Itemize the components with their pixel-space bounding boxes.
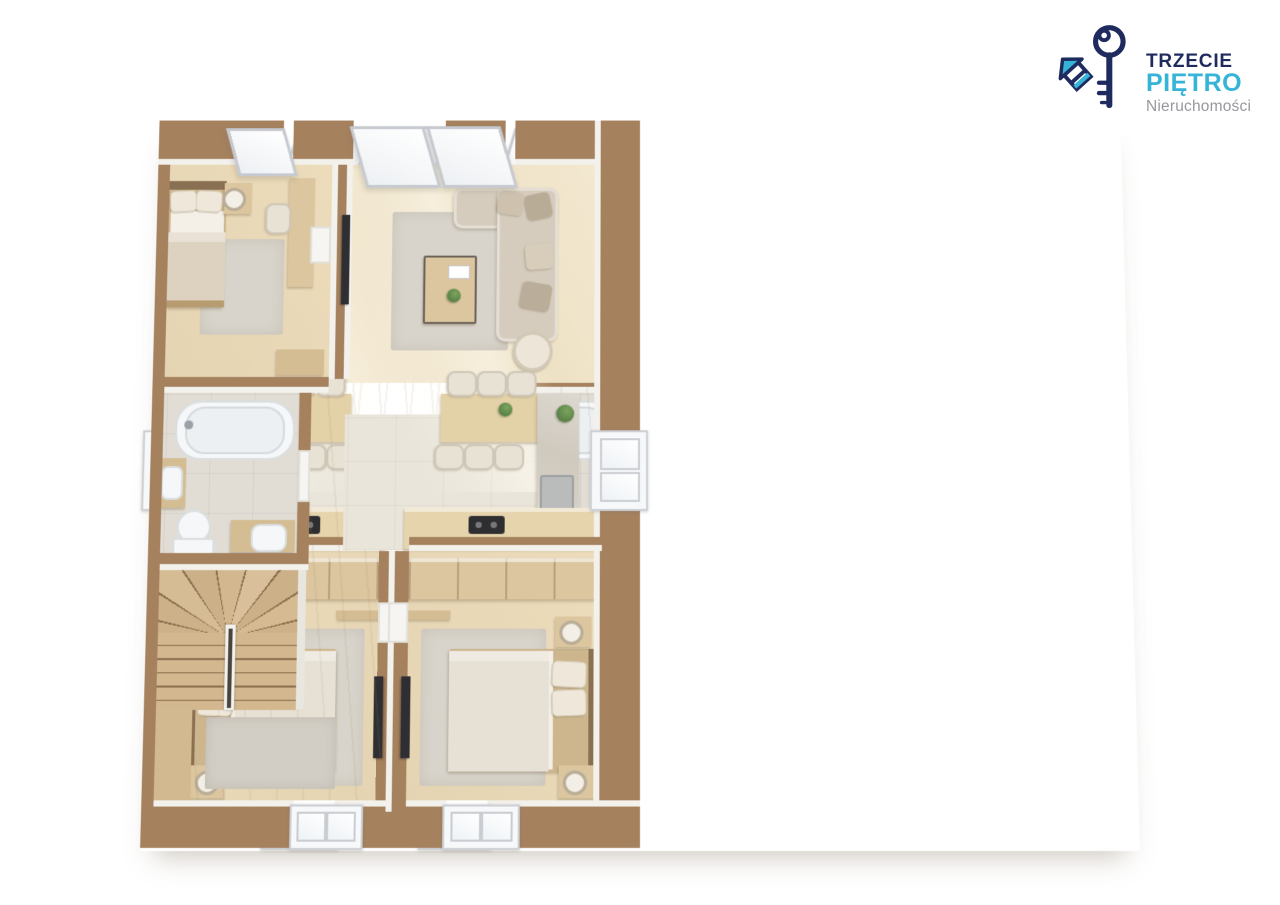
dining-chair (507, 371, 537, 397)
wall-kitchen-bedroom (409, 537, 602, 551)
wall-bottom (520, 800, 640, 848)
sofa-cushion (497, 190, 526, 216)
door-bedroom-bottom (388, 602, 409, 642)
wall-bath-stairs (160, 553, 309, 570)
window-pane (326, 812, 356, 842)
hallway-rug (205, 717, 336, 789)
window-pane (600, 438, 640, 470)
skylight-bedroom (230, 126, 294, 178)
bathtub-basin (185, 407, 286, 455)
desk-chair (265, 203, 291, 234)
dining-chair (494, 444, 524, 470)
coffee-table-books (448, 265, 470, 279)
dining-chair (434, 444, 464, 470)
sofa-cushion (519, 281, 553, 313)
coffee-table-plant (447, 289, 461, 303)
wall-top (293, 121, 354, 165)
nightstand-lamp (563, 770, 587, 795)
brand-name: TRZECIE PIĘTRO Nieruchomości (1146, 52, 1251, 116)
door-bedroom-top (310, 226, 331, 263)
bed-top-pillow (195, 190, 224, 213)
brand-line3: Nieruchomości (1146, 98, 1251, 116)
bed-top-blanket (167, 232, 226, 300)
skylight-pane (226, 128, 298, 176)
hall-wardrobe (153, 707, 192, 815)
dining-table (440, 394, 539, 442)
bed-top-headboard (170, 181, 227, 190)
skylight-living (353, 122, 516, 187)
bed-bottom-blanket (448, 651, 549, 772)
sofa-cushion (523, 191, 553, 221)
dining-chair (477, 371, 507, 397)
bed-bottom-pillow (551, 660, 587, 688)
wall-bottom (140, 800, 294, 848)
unit-right (140, 121, 640, 848)
brand-line2: PIĘTRO (1146, 71, 1251, 97)
floorplan (140, 121, 1140, 852)
bedroom-wardrobe (408, 558, 601, 599)
round-side-table (513, 332, 553, 371)
window-pane (600, 472, 640, 502)
wall-bathroom-left (299, 393, 312, 450)
counter-plant (556, 405, 574, 423)
brand-logo: TRZECIE PIĘTRO Nieruchomości (1056, 18, 1251, 120)
wall-bedroom-bath (164, 377, 328, 393)
sofa-cushion (524, 243, 554, 271)
window-left-wall (590, 430, 648, 511)
skylight-pane (350, 126, 442, 188)
tv-bedroom (400, 676, 410, 758)
bed-top-footboard (166, 300, 224, 307)
skylight-pane (426, 126, 518, 188)
dining-table-plant (498, 403, 512, 417)
door-bathroom (298, 450, 311, 502)
vanity-sink (160, 466, 183, 500)
wall-left (594, 121, 640, 433)
bed-bottom-pillow (552, 689, 587, 717)
cooktop (468, 516, 504, 534)
wall-top (158, 121, 231, 165)
window-pane (296, 812, 326, 842)
tv-living (341, 215, 350, 304)
bidet-basin (250, 524, 287, 552)
dining-chair (447, 371, 477, 397)
key-house-icon (1056, 18, 1142, 120)
wall-bedroom-hall (388, 551, 409, 602)
bed-top-pillow (170, 190, 197, 213)
window-bottom-bedroom (442, 804, 520, 850)
dining-chair (464, 444, 494, 470)
window-pane (481, 812, 513, 842)
kitchen-sink (540, 475, 574, 511)
nightstand-lamp (559, 621, 583, 645)
floorplan-image: TRZECIE PIĘTRO Nieruchomości (0, 0, 1280, 905)
window-pane (450, 812, 481, 842)
window-bottom-hall (289, 804, 363, 850)
bedroom-sideboard (276, 349, 324, 375)
